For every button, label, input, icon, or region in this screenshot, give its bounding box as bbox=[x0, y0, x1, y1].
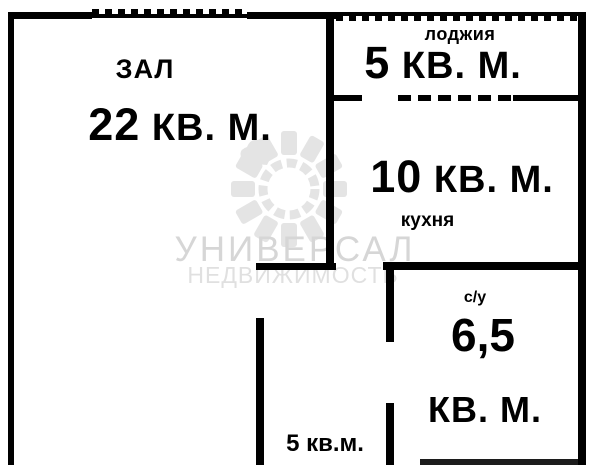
floor-plan: УНИВЕРСАЛ НЕДВИЖИМОСТЬ ЗАЛ 22 КВ. М. лод… bbox=[0, 0, 600, 465]
wall-loggia-divider-left bbox=[326, 95, 362, 101]
room-bathroom-area-value: 6,5 bbox=[418, 312, 548, 358]
kitchen-area-unit: КВ. М. bbox=[434, 159, 554, 201]
wall-left bbox=[8, 12, 14, 465]
wall-kitchen-bottom bbox=[383, 262, 586, 270]
loggia-area-unit: КВ. М. bbox=[402, 45, 522, 87]
room-kitchen-name: кухня bbox=[380, 211, 475, 230]
wall-bottom-partial bbox=[420, 459, 578, 465]
room-loggia-area: 5 КВ. М. bbox=[332, 40, 554, 85]
wall-right bbox=[578, 12, 586, 465]
loggia-area-value: 5 bbox=[364, 37, 390, 88]
room-kitchen-area: 10 КВ. М. bbox=[342, 154, 582, 199]
hall-window bbox=[92, 9, 247, 18]
wall-loggia-divider-right bbox=[513, 95, 586, 101]
hall-area-unit: КВ. М. bbox=[152, 107, 272, 149]
wall-hallway-left bbox=[256, 318, 264, 465]
room-bathroom-area-unit: КВ. М. bbox=[400, 392, 570, 428]
wall-bathroom-left-upper bbox=[386, 262, 394, 342]
room-hall-name: ЗАЛ bbox=[60, 56, 230, 83]
room-hall-area: 22 КВ. М. bbox=[35, 102, 325, 147]
room-bathroom-name: с/у bbox=[440, 290, 510, 306]
room-hallway-area: 5 кв.м. bbox=[264, 432, 386, 456]
wall-top-middle bbox=[247, 12, 336, 19]
wall-hall-bottom bbox=[256, 263, 336, 270]
loggia-window bbox=[336, 12, 578, 21]
wall-bathroom-left-lower bbox=[386, 403, 394, 465]
loggia-door-dashes bbox=[398, 95, 513, 101]
hall-area-value: 22 bbox=[88, 99, 140, 150]
kitchen-area-value: 10 bbox=[370, 151, 422, 202]
wall-top-left bbox=[8, 12, 92, 19]
